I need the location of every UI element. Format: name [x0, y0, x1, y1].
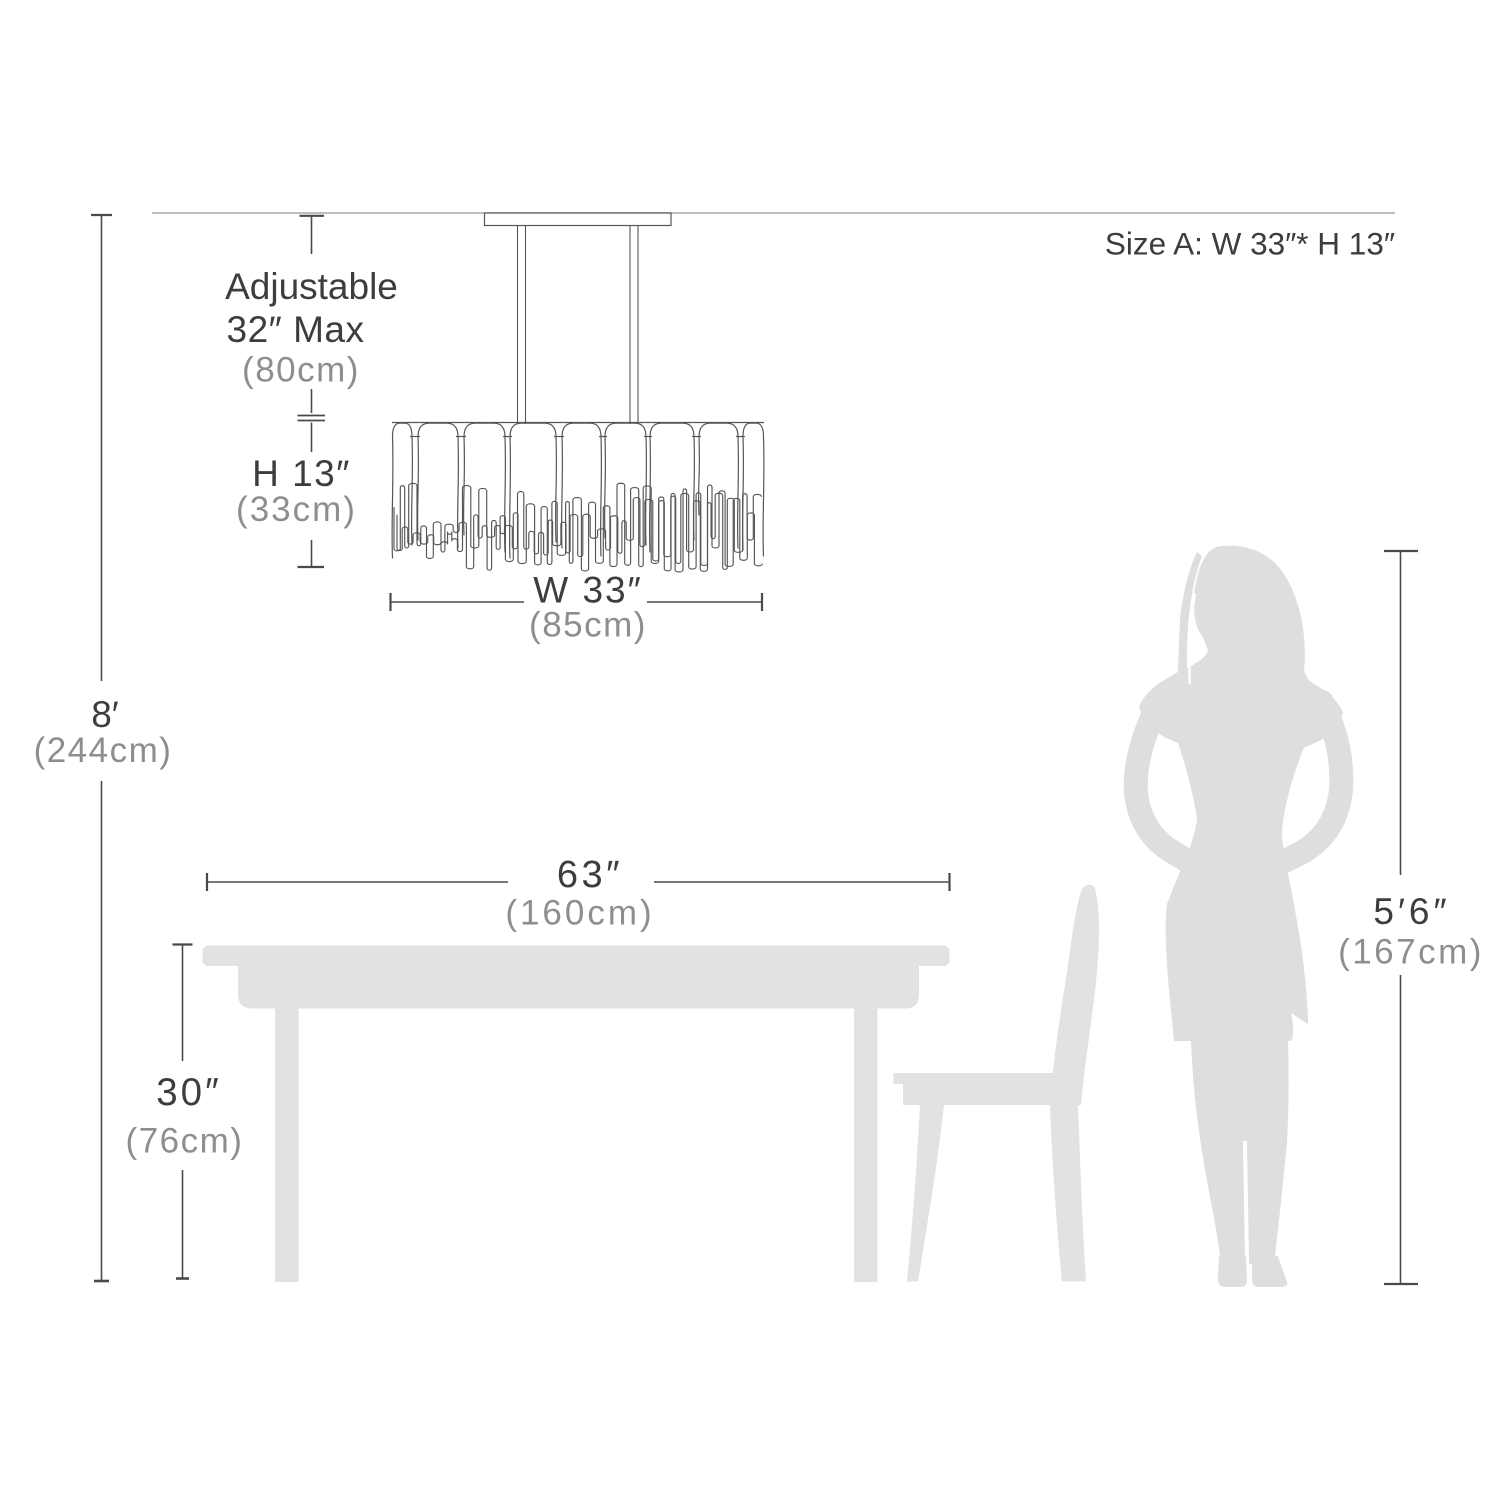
svg-text:(244cm): (244cm): [34, 731, 173, 770]
svg-text:32″ Max: 32″ Max: [227, 309, 365, 350]
svg-text:(85cm): (85cm): [529, 606, 647, 645]
svg-text:Adjustable: Adjustable: [225, 266, 398, 307]
svg-text:30″: 30″: [156, 1071, 221, 1114]
svg-text:(167cm): (167cm): [1338, 933, 1484, 972]
svg-text:(160cm): (160cm): [505, 894, 654, 933]
svg-text:(76cm): (76cm): [126, 1122, 244, 1161]
svg-text:(80cm): (80cm): [242, 351, 360, 390]
svg-text:5′6″: 5′6″: [1373, 891, 1450, 932]
svg-text:8′: 8′: [91, 694, 119, 735]
svg-text:63″: 63″: [557, 854, 623, 896]
svg-text:W 33″: W 33″: [533, 570, 642, 611]
svg-text:(33cm): (33cm): [236, 490, 357, 529]
svg-text:Size A: W 33″* H 13″: Size A: W 33″* H 13″: [1105, 226, 1395, 262]
svg-text:H 13″: H 13″: [252, 453, 351, 494]
